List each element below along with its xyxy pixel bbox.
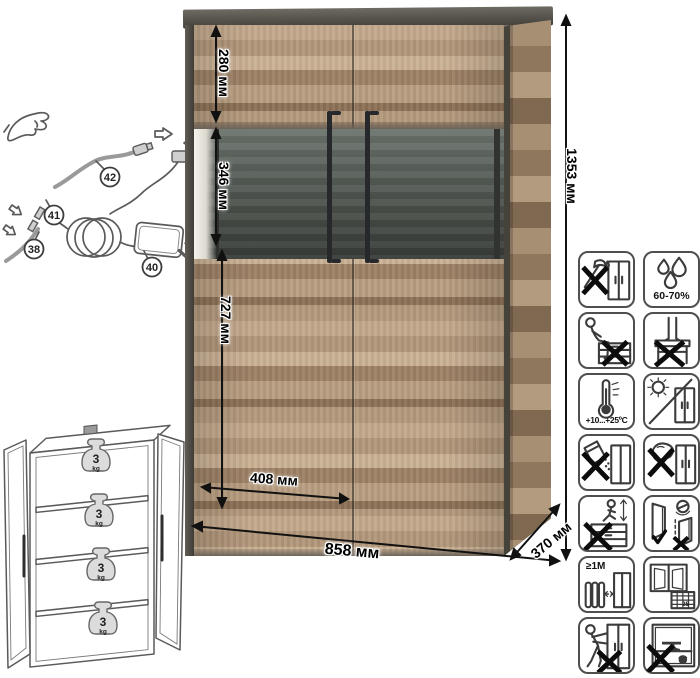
- hand-illustration: [4, 113, 49, 141]
- no-sharp-tools-icon: [578, 251, 635, 308]
- ventilation-icon: 25: [643, 556, 700, 613]
- care-icons-grid: 60-70%: [578, 251, 700, 674]
- no-climbing-icon: [578, 495, 635, 552]
- dim-overall-height: 1353 мм: [564, 148, 580, 204]
- svg-text:3: 3: [96, 507, 103, 521]
- no-wet-sponge-icon: [643, 434, 700, 491]
- svg-text:kg: kg: [92, 466, 100, 473]
- display-interior-light: [194, 129, 216, 259]
- open-door-right: [156, 434, 184, 650]
- cable-42: [55, 152, 134, 187]
- dim-door-width: 408 мм: [250, 469, 299, 488]
- no-overload-icon: [643, 617, 700, 674]
- no-standing-icon: [643, 312, 700, 369]
- arrow-small-icon: [2, 223, 18, 239]
- svg-text:3: 3: [98, 561, 105, 575]
- arrow-right-icon: [155, 128, 172, 140]
- svg-text:kg: kg: [95, 521, 103, 528]
- no-sitting-icon: [578, 312, 635, 369]
- barrel-plug: [110, 151, 194, 214]
- callout-42: 42: [96, 161, 120, 187]
- svg-text:42: 42: [104, 172, 116, 184]
- dim-display-section: 346 мм: [216, 162, 232, 210]
- product-diagram: 42 41 38 40: [0, 0, 700, 678]
- cabinet-lower-doors: [194, 259, 504, 556]
- svg-text:3: 3: [100, 615, 107, 629]
- humidity-icon: 60-70%: [643, 251, 700, 308]
- door-handle-right: [365, 111, 370, 263]
- no-abrasive-powder-icon: [578, 434, 635, 491]
- no-direct-sunlight-icon: [643, 373, 700, 430]
- led-wiring-diagram: 42 41 38 40: [0, 95, 205, 295]
- svg-text:38: 38: [28, 244, 40, 256]
- heat-source-distance-icon: ≥1M: [578, 556, 635, 613]
- temperature-range-icon: +10...+25ºC: [578, 373, 635, 430]
- humidity-label: 60-70%: [645, 290, 698, 302]
- callout-41: 41: [45, 200, 64, 225]
- door-handle-left: [327, 111, 332, 263]
- cabinet-upper-doors: [194, 25, 504, 129]
- svg-text:25: 25: [682, 601, 689, 608]
- arrow-small-icon: [8, 203, 24, 219]
- cable-42-plug: [132, 141, 153, 155]
- no-dragging-icon: [578, 617, 635, 674]
- svg-text:40: 40: [146, 262, 158, 274]
- temperature-label: +10...+25ºC: [580, 415, 633, 425]
- svg-text:41: 41: [48, 210, 60, 222]
- distance-label: ≥1M: [586, 561, 605, 572]
- cabinet-photo: [183, 8, 561, 562]
- dim-top-section: 280 мм: [216, 49, 232, 97]
- cabinet-front: [194, 25, 504, 556]
- door-adjustment-icon: [643, 495, 700, 552]
- cabinet-glass-display: [194, 129, 504, 259]
- svg-text:3: 3: [93, 452, 100, 466]
- svg-text:kg: kg: [97, 575, 105, 582]
- dim-bottom-section: 727 мм: [218, 296, 234, 344]
- svg-text:kg: kg: [99, 629, 107, 636]
- cabinet-line-drawing: 3kg 3kg 3kg 3kg: [2, 418, 194, 678]
- cabinet-side-panel: [504, 20, 551, 556]
- open-door-left: [4, 440, 30, 668]
- glass-frame-right: [494, 129, 500, 259]
